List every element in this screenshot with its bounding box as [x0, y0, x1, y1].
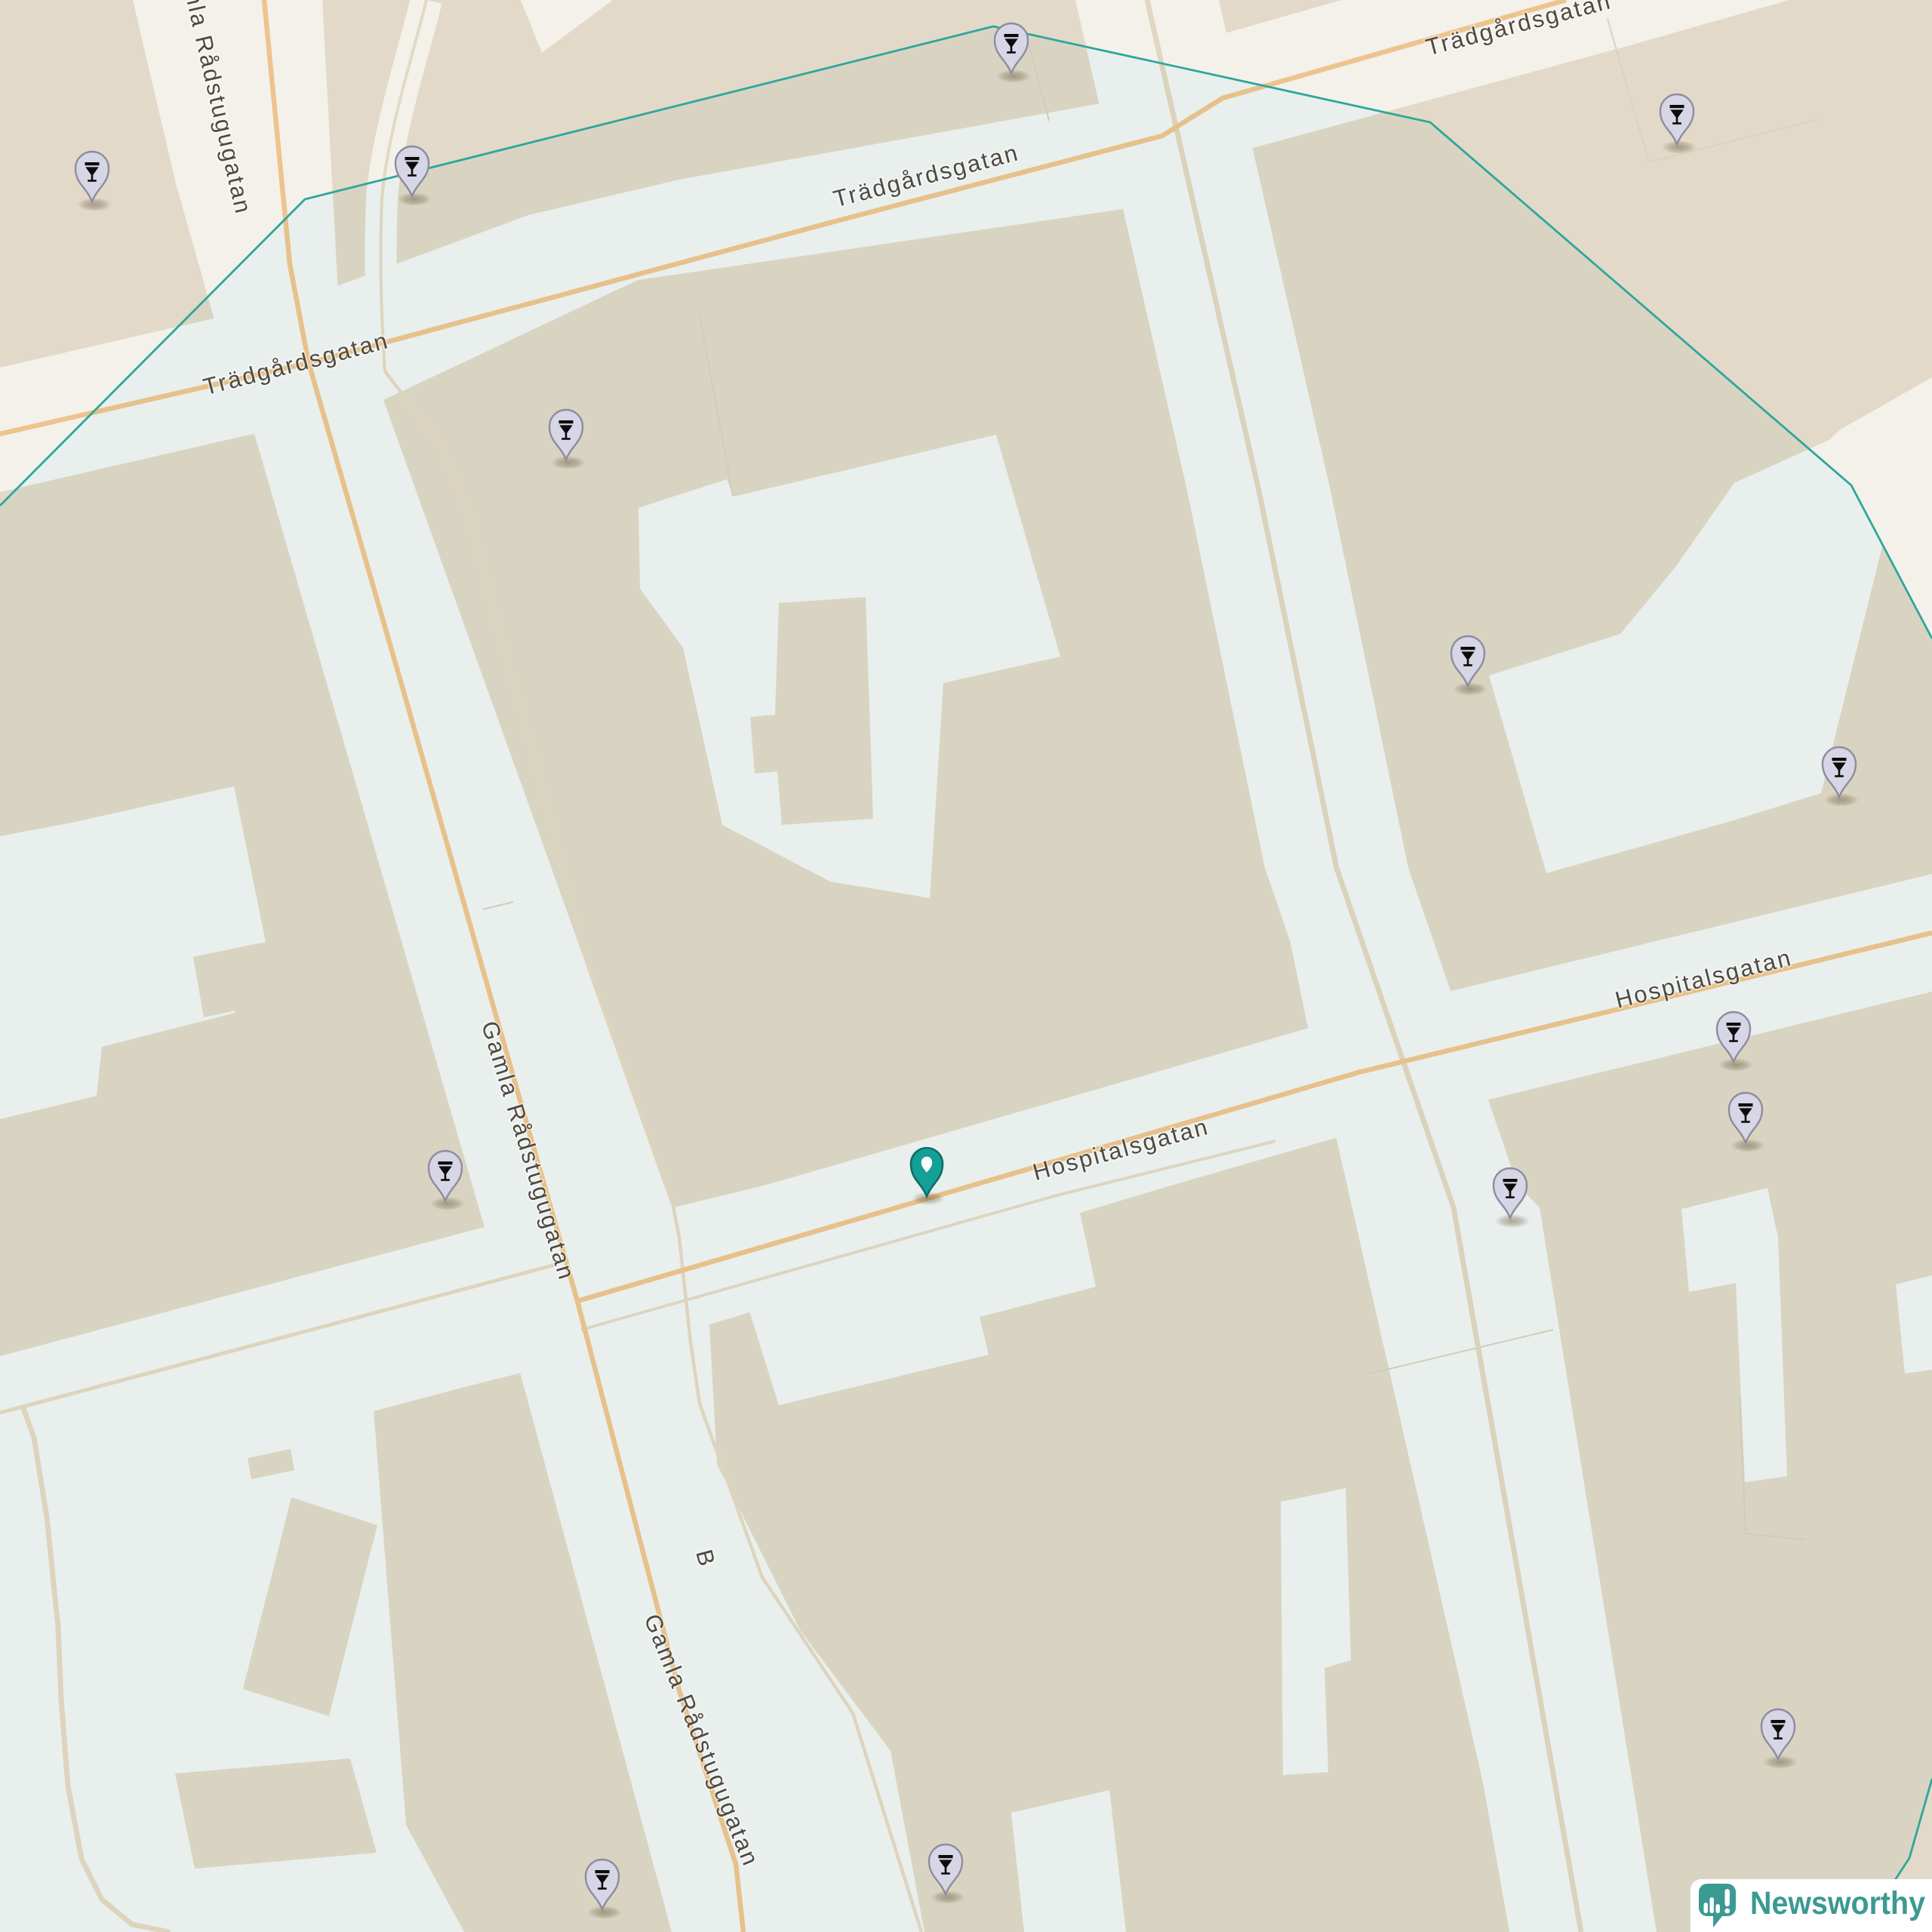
- svg-text:Newsworthy: Newsworthy: [1750, 1885, 1925, 1921]
